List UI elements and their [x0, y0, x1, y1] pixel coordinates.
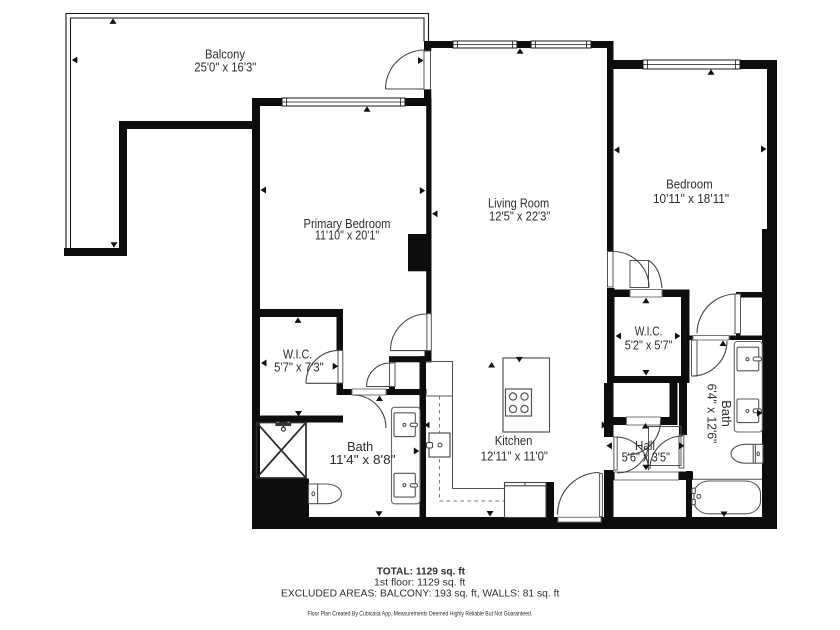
svg-text:11'10" x 20'1": 11'10" x 20'1": [315, 228, 380, 243]
svg-text:5'6" x 3'5": 5'6" x 3'5": [622, 451, 670, 465]
svg-text:Floor Plan Created By Cubicasa: Floor Plan Created By Cubicasa App. Meas…: [308, 611, 533, 618]
svg-text:10'11" x 18'11": 10'11" x 18'11": [653, 191, 729, 206]
svg-text:25'0" x 16'3": 25'0" x 16'3": [194, 59, 256, 74]
svg-text:Bedroom: Bedroom: [666, 177, 713, 192]
svg-text:12'5" x 22'3": 12'5" x 22'3": [489, 209, 551, 224]
svg-text:Kitchen: Kitchen: [495, 433, 533, 448]
svg-text:12'11" x 11'0": 12'11" x 11'0": [481, 449, 549, 464]
svg-text:5'7" x 7'3": 5'7" x 7'3": [274, 360, 324, 374]
svg-text:6'4" x 12'6": 6'4" x 12'6": [705, 384, 719, 444]
svg-text:W.I.C.: W.I.C.: [635, 325, 663, 339]
svg-text:5'2" x 5'7": 5'2" x 5'7": [625, 338, 673, 352]
svg-text:EXCLUDED AREAS: BALCONY: 193 s: EXCLUDED AREAS: BALCONY: 193 sq. ft, WAL…: [281, 587, 559, 599]
svg-text:11'4" x 8'8": 11'4" x 8'8": [329, 453, 395, 467]
svg-text:Bath: Bath: [719, 400, 733, 427]
